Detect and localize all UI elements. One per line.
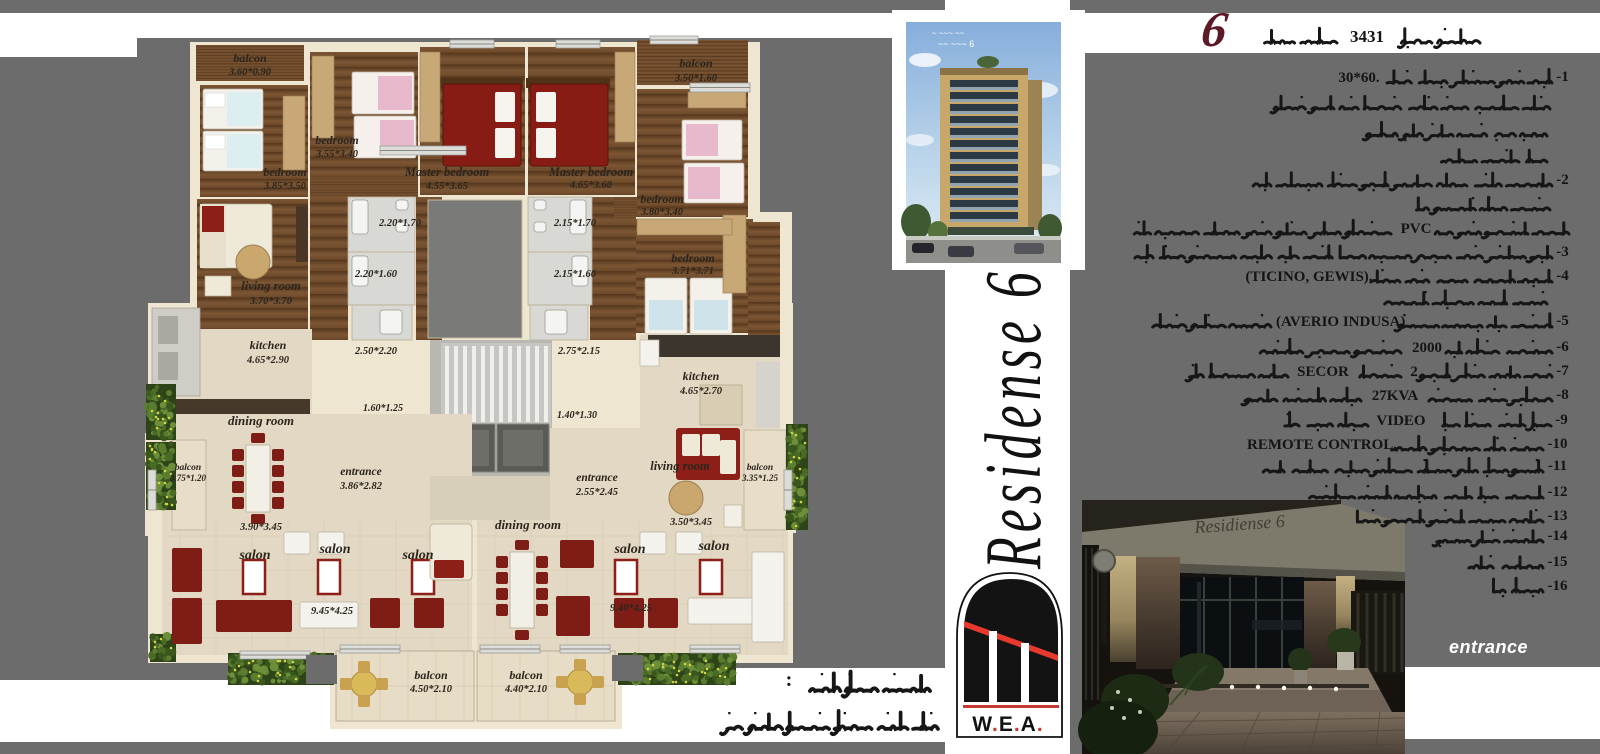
svg-text:dining room: dining room [495,517,561,532]
svg-text:balcon: balcon [233,51,267,65]
svg-text:living room: living room [241,279,301,293]
svg-text:balcon: balcon [509,668,543,682]
svg-text:~ ~~~ ~~: ~ ~~~ ~~ [932,29,965,38]
svg-text:4.65*2.70: 4.65*2.70 [679,386,723,397]
svg-text:3.50*1.60: 3.50*1.60 [674,73,718,84]
svg-text:3.86*2.82: 3.86*2.82 [339,481,383,492]
svg-text:2.20*1.60: 2.20*1.60 [354,269,398,280]
svg-text:3.90*3.45: 3.90*3.45 [239,522,282,533]
svg-text:4.55*3.65: 4.55*3.65 [425,181,468,192]
svg-text:3.55*3.40: 3.55*3.40 [315,149,359,160]
svg-text:3.70*3.70: 3.70*3.70 [249,296,293,307]
svg-text:3.85*3.50: 3.85*3.50 [263,181,307,192]
svg-text:salon: salon [238,548,270,563]
svg-text:balcon: balcon [175,463,201,473]
svg-text:living room: living room [650,459,710,473]
svg-text:2.15*1.60: 2.15*1.60 [553,269,597,280]
svg-text:salon: salon [697,539,729,554]
svg-text:balcon: balcon [414,668,448,682]
svg-text:3.71*3.71: 3.71*3.71 [671,266,714,277]
svg-text:~~ ~~~ 6: ~~ ~~~ 6 [938,39,974,49]
svg-text:3.50*3.45: 3.50*3.45 [669,517,712,528]
svg-text:3.80*3.40: 3.80*3.40 [640,207,684,218]
svg-text:3.60*0.90: 3.60*0.90 [228,67,272,78]
svg-text:2.55*2.45: 2.55*2.45 [575,487,618,498]
svg-text:dining room: dining room [228,413,294,428]
svg-text:1.40*1.30: 1.40*1.30 [557,410,597,421]
svg-text:W.E.A.: W.E.A. [972,713,1043,736]
svg-text:bedroom: bedroom [671,251,714,265]
svg-text:kitchen: kitchen [683,369,720,383]
svg-text:2.75*2.15: 2.75*2.15 [557,346,600,357]
svg-text:bedroom: bedroom [640,192,683,206]
svg-text:entrance: entrance [340,466,382,478]
svg-text:4.40*2.10: 4.40*2.10 [504,684,548,695]
svg-text:4.65*2.90: 4.65*2.90 [246,355,290,366]
svg-text:2.50*2.20: 2.50*2.20 [354,346,398,357]
svg-text:balcon: balcon [679,56,713,70]
svg-text:salon: salon [318,542,350,557]
svg-text:1.60*1.25: 1.60*1.25 [363,403,403,414]
svg-text:9.40*4.25: 9.40*4.25 [610,603,652,614]
svg-text:3.35*1.25: 3.35*1.25 [741,473,779,483]
svg-text:bedroom: bedroom [263,165,306,179]
svg-text:salon: salon [401,548,433,563]
svg-text:entrance: entrance [576,472,618,484]
svg-text:3.75*1.20: 3.75*1.20 [169,473,207,483]
svg-text:9.45*4.25: 9.45*4.25 [311,606,353,617]
svg-text:kitchen: kitchen [250,338,287,352]
svg-text:bedroom: bedroom [315,133,358,147]
svg-text:2.20*1.70: 2.20*1.70 [378,218,422,229]
svg-text:Master bedroom: Master bedroom [548,165,634,179]
svg-text:Master bedroom: Master bedroom [404,165,490,179]
svg-text:2.15*1.70: 2.15*1.70 [553,218,597,229]
svg-text:4.50*2.10: 4.50*2.10 [409,684,453,695]
svg-text:4.65*3.60: 4.65*3.60 [569,180,613,191]
svg-text:balcon: balcon [747,463,773,473]
svg-text:salon: salon [613,542,645,557]
